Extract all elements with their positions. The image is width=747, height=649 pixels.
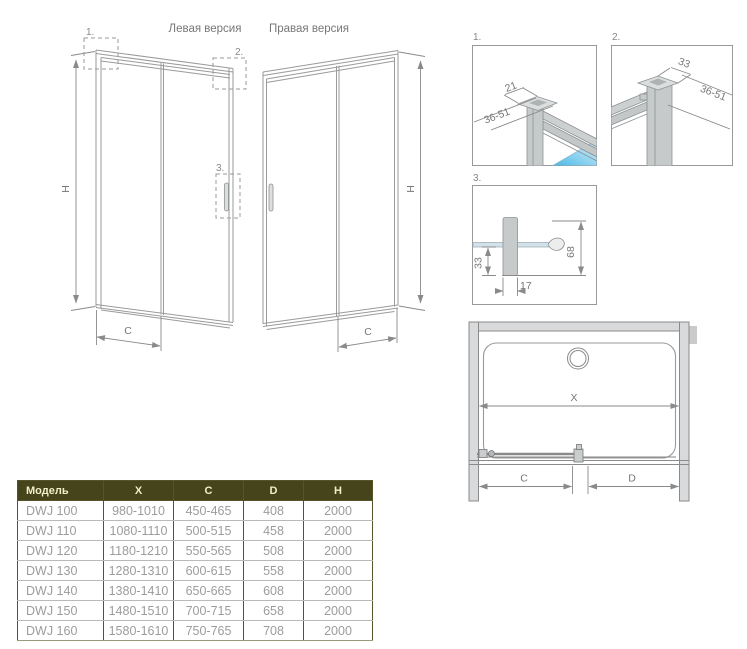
plan-x-dimension: X [480, 392, 679, 406]
column-header-d: D [244, 481, 304, 501]
detail-3-dim-height: 68 [565, 246, 577, 258]
cell-d: 408 [244, 501, 304, 521]
right-version-drawing: Правая версия H C [263, 23, 425, 352]
cell-x: 1080-1110 [104, 521, 174, 541]
cell-model: DWJ 100 [18, 501, 104, 521]
cell-c: 450-465 [174, 501, 244, 521]
plan-cd-dimensions: C D [480, 466, 679, 494]
cell-c: 750-765 [174, 621, 244, 641]
right-c-label: C [364, 326, 372, 338]
vertical-profile [647, 84, 672, 166]
left-door-structure [96, 50, 233, 328]
cell-x: 1180-1210 [104, 541, 174, 561]
cell-model: DWJ 120 [18, 541, 104, 561]
cell-model: DWJ 110 [18, 521, 104, 541]
cell-h: 2000 [304, 521, 373, 541]
table-header-row: Модель X C D H [18, 481, 373, 501]
top-wall [469, 322, 689, 331]
cell-c: 550-565 [174, 541, 244, 561]
right-version-title: Правая версия [269, 23, 349, 35]
left-version-title: Левая версия [169, 23, 242, 35]
detail-3: 3. 68 33 17 [473, 173, 597, 305]
handle-profile [503, 218, 518, 276]
column-header-c: C [174, 481, 244, 501]
cell-d: 658 [244, 601, 304, 621]
cell-d: 608 [244, 581, 304, 601]
right-wall [680, 322, 690, 501]
cell-model: DWJ 160 [18, 621, 104, 641]
cell-model: DWJ 130 [18, 561, 104, 581]
detail-3-dim-depth: 33 [473, 257, 485, 269]
cell-d: 508 [244, 541, 304, 561]
plan-view: X C D [469, 322, 697, 501]
cell-h: 2000 [304, 601, 373, 621]
cell-model: DWJ 140 [18, 581, 104, 601]
cell-x: 1280-1310 [104, 561, 174, 581]
spec-sheet: Левая версия H C 1. 2. 3. Правая в [0, 0, 747, 649]
column-header-h: H [304, 481, 373, 501]
right-h-label: H [405, 185, 417, 193]
cell-model: DWJ 150 [18, 601, 104, 621]
plan-c-label: C [520, 473, 528, 485]
table-row: DWJ 160 1580-1610 750-765 708 2000 [18, 621, 373, 641]
cell-d: 708 [244, 621, 304, 641]
detail-2: 2. 33 36-51 [611, 32, 733, 166]
cell-h: 2000 [304, 621, 373, 641]
marker-1-label: 1. [86, 27, 94, 38]
cell-d: 458 [244, 521, 304, 541]
left-h-dimension: H [60, 52, 95, 311]
table-row: DWJ 110 1080-1110 500-515 458 2000 [18, 521, 373, 541]
cell-h: 2000 [304, 501, 373, 521]
table-row: DWJ 100 980-1010 450-465 408 2000 [18, 501, 373, 521]
wall-shadow [689, 326, 697, 344]
cell-c: 500-515 [174, 521, 244, 541]
right-h-dimension: H [399, 52, 425, 311]
right-door-structure [263, 51, 398, 330]
drain [568, 348, 589, 369]
right-door-handle [269, 184, 273, 211]
detail-1: 1. 21 36-51 [473, 32, 598, 166]
marker-2-label: 2. [235, 47, 243, 58]
cell-h: 2000 [304, 561, 373, 581]
detail-2-label: 2. [612, 32, 620, 43]
left-h-label: H [60, 185, 72, 193]
cell-c: 700-715 [174, 601, 244, 621]
marker-3-label: 3. [216, 163, 224, 174]
cell-c: 600-615 [174, 561, 244, 581]
detail-3-dim-thickness: 17 [520, 280, 532, 292]
table-row: DWJ 150 1480-1510 700-715 658 2000 [18, 601, 373, 621]
cell-c: 650-665 [174, 581, 244, 601]
cell-x: 980-1010 [104, 501, 174, 521]
column-header-x: X [104, 481, 174, 501]
cell-h: 2000 [304, 541, 373, 561]
left-wall [469, 322, 479, 501]
cell-x: 1580-1610 [104, 621, 174, 641]
roller [489, 451, 495, 457]
plan-door-track [469, 445, 689, 465]
left-door-handle [225, 183, 229, 211]
center-bracket [574, 449, 583, 462]
column-header-model: Модель [18, 481, 104, 501]
detail-1-label: 1. [473, 32, 481, 43]
table-row: DWJ 140 1380-1410 650-665 608 2000 [18, 581, 373, 601]
plan-d-label: D [628, 473, 636, 485]
cell-x: 1480-1510 [104, 601, 174, 621]
left-c-label: C [124, 325, 132, 337]
spec-table: Модель X C D H DWJ 100 980-1010 450-465 … [17, 480, 373, 641]
left-c-dimension: C [97, 310, 162, 351]
table-row: DWJ 130 1280-1310 600-615 558 2000 [18, 561, 373, 581]
cell-x: 1380-1410 [104, 581, 174, 601]
table-row: DWJ 120 1180-1210 550-565 508 2000 [18, 541, 373, 561]
cell-d: 558 [244, 561, 304, 581]
detail-3-label: 3. [473, 173, 481, 184]
plan-x-label: X [570, 392, 577, 404]
left-version-drawing: Левая версия H C 1. 2. 3. [60, 23, 246, 351]
cell-h: 2000 [304, 581, 373, 601]
